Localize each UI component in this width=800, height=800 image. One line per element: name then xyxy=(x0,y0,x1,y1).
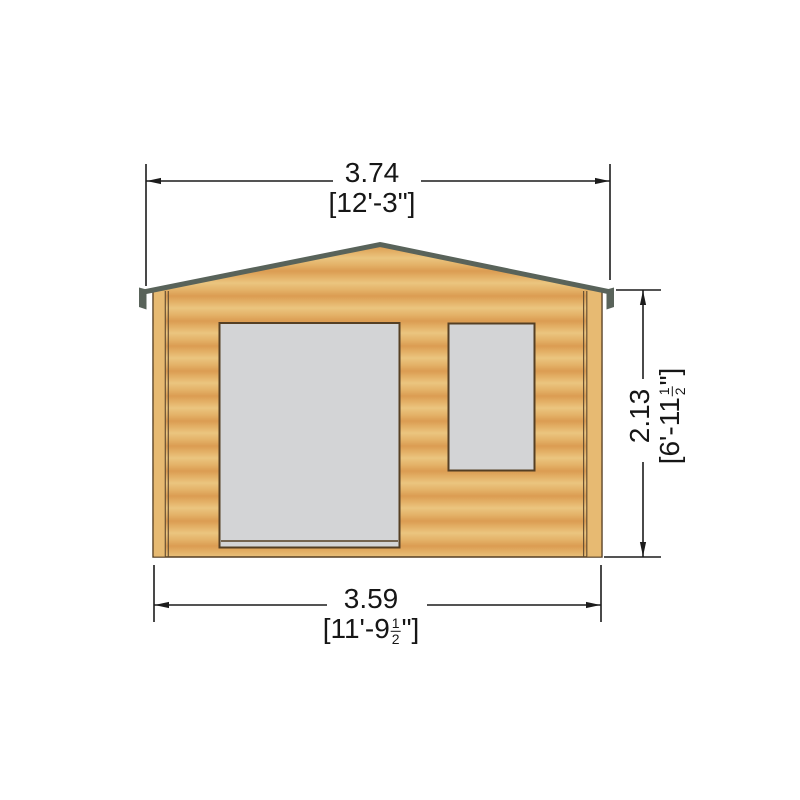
fraction-denominator: 2 xyxy=(673,387,688,395)
imperial-prefix: [11'-9 xyxy=(323,614,390,644)
fraction-numerator: 1 xyxy=(391,616,401,632)
fraction: 1 2 xyxy=(391,616,401,646)
fraction-denominator: 2 xyxy=(392,632,400,647)
dimension-value-imperial: [11'-9 1 2 "] xyxy=(323,614,420,644)
imperial-prefix: [6'-11 xyxy=(655,397,685,464)
dimension-label-wall-height: 2.13 [6'-11 1 2 "] xyxy=(625,368,685,465)
arrowhead-left xyxy=(155,602,170,608)
dimension-value-metric: 3.74 xyxy=(345,158,400,188)
arrowhead-right xyxy=(586,602,601,608)
window-panel xyxy=(449,324,535,471)
fraction: 1 2 xyxy=(657,386,687,396)
dimension-value-metric: 3.59 xyxy=(344,584,399,614)
door-panel xyxy=(220,323,400,548)
corner-trim-right xyxy=(587,291,601,557)
imperial-suffix: "] xyxy=(655,368,685,386)
dimension-label-overall-width: 3.74 [12'-3"] xyxy=(329,158,416,218)
arrowhead-left xyxy=(147,178,162,184)
roof-fascia-tab-right xyxy=(607,288,615,310)
dimension-value-imperial: [12'-3"] xyxy=(329,188,416,218)
dimension-label-base-width: 3.59 [11'-9 1 2 "] xyxy=(323,584,420,644)
dimension-value-imperial: [6'-11 1 2 "] xyxy=(655,368,685,465)
roof-fascia-tab-left xyxy=(139,288,147,310)
arrowhead-up xyxy=(640,291,646,306)
arrowhead-right xyxy=(595,178,610,184)
imperial-suffix: "] xyxy=(402,614,420,644)
dimension-value-metric: 2.13 xyxy=(625,389,655,444)
fraction-numerator: 1 xyxy=(657,386,673,396)
elevation-diagram-canvas: 3.74 [12'-3"] 2.13 [6'-11 1 2 "] 3.59 [1… xyxy=(0,0,800,800)
arrowhead-down xyxy=(640,542,646,557)
corner-trim-left xyxy=(154,291,165,557)
